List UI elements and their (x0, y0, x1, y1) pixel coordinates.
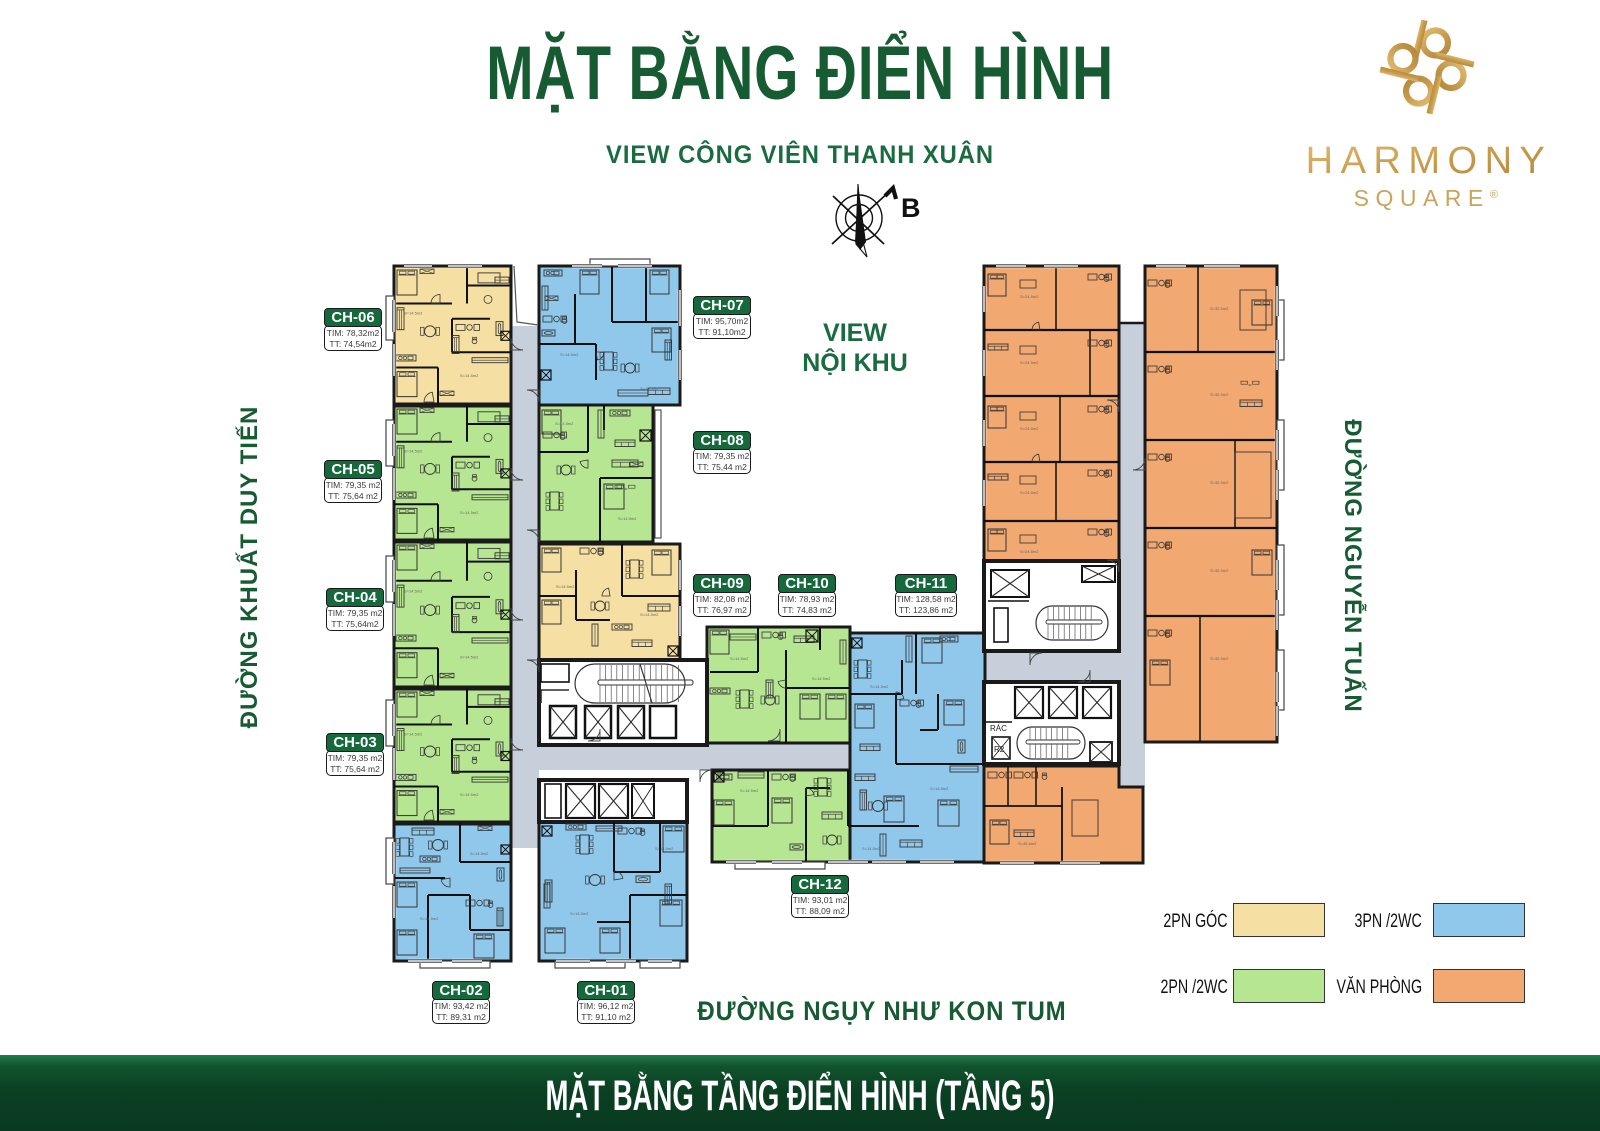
svg-text:S=14.5m2: S=14.5m2 (640, 612, 659, 617)
svg-text:S=14.5m2: S=14.5m2 (404, 449, 423, 454)
svg-text:S=24.5m2: S=24.5m2 (1020, 294, 1039, 299)
svg-text:S=24.5m2: S=24.5m2 (1020, 490, 1039, 495)
svg-text:R2: R2 (994, 745, 1005, 754)
svg-text:S=14.5m2: S=14.5m2 (862, 846, 881, 851)
svg-text:S=14.5m2: S=14.5m2 (555, 421, 574, 426)
svg-text:S=14.5m2: S=14.5m2 (460, 510, 479, 515)
svg-text:S=14.5m2: S=14.5m2 (404, 731, 423, 736)
svg-text:S=24.5m2: S=24.5m2 (1020, 426, 1039, 431)
svg-text:S=14.5m2: S=14.5m2 (460, 373, 479, 378)
svg-text:S=14.5m2: S=14.5m2 (655, 846, 674, 851)
svg-text:S=32.0m2: S=32.0m2 (1210, 306, 1229, 311)
svg-text:RÁC: RÁC (990, 724, 1007, 733)
svg-text:S=24.5m2: S=24.5m2 (1020, 549, 1039, 554)
svg-text:S=14.5m2: S=14.5m2 (812, 676, 831, 681)
svg-text:SQUARE®: SQUARE® (1354, 185, 1505, 211)
svg-text:S=14.5m2: S=14.5m2 (730, 656, 749, 661)
svg-text:S=24.5m2: S=24.5m2 (1020, 360, 1039, 365)
svg-text:S=45.6m2: S=45.6m2 (1018, 841, 1037, 846)
svg-text:S=14.5m2: S=14.5m2 (460, 655, 479, 660)
svg-text:S=14.5m2: S=14.5m2 (404, 311, 423, 316)
svg-text:S=14.5m2: S=14.5m2 (560, 352, 579, 357)
svg-text:S=14.5m2: S=14.5m2 (404, 588, 423, 593)
svg-text:S=14.5m2: S=14.5m2 (930, 786, 949, 791)
svg-text:S=32.0m2: S=32.0m2 (1210, 480, 1229, 485)
svg-text:S=14.5m2: S=14.5m2 (460, 792, 479, 797)
svg-text:S=14.5m2: S=14.5m2 (470, 851, 489, 856)
svg-text:S=14.5m2: S=14.5m2 (556, 584, 575, 589)
svg-text:S=32.0m2: S=32.0m2 (1210, 392, 1229, 397)
svg-text:B: B (901, 193, 921, 223)
svg-text:S=14.5m2: S=14.5m2 (618, 516, 637, 521)
svg-text:S=32.0m2: S=32.0m2 (1210, 568, 1229, 573)
svg-text:HARMONY: HARMONY (1306, 140, 1553, 182)
svg-text:S=14.5m2: S=14.5m2 (570, 911, 589, 916)
svg-text:S=14.5m2: S=14.5m2 (870, 684, 889, 689)
svg-text:S=32.0m2: S=32.0m2 (1210, 656, 1229, 661)
svg-text:S=14.5m2: S=14.5m2 (420, 916, 439, 921)
svg-text:S=14.5m2: S=14.5m2 (740, 788, 759, 793)
